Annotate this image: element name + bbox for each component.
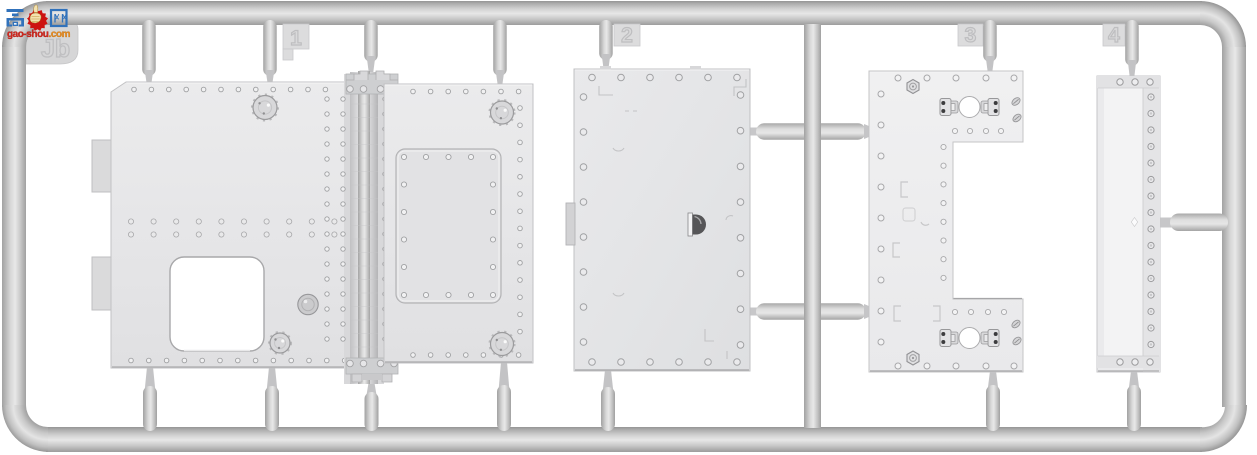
svg-text:1: 1 bbox=[290, 27, 302, 50]
svg-text:gao-shou: gao-shou bbox=[7, 29, 49, 40]
svg-text:2: 2 bbox=[621, 24, 633, 47]
svg-text:.com: .com bbox=[49, 29, 71, 40]
svg-text:3: 3 bbox=[965, 24, 977, 47]
svg-text:4: 4 bbox=[1108, 24, 1120, 47]
